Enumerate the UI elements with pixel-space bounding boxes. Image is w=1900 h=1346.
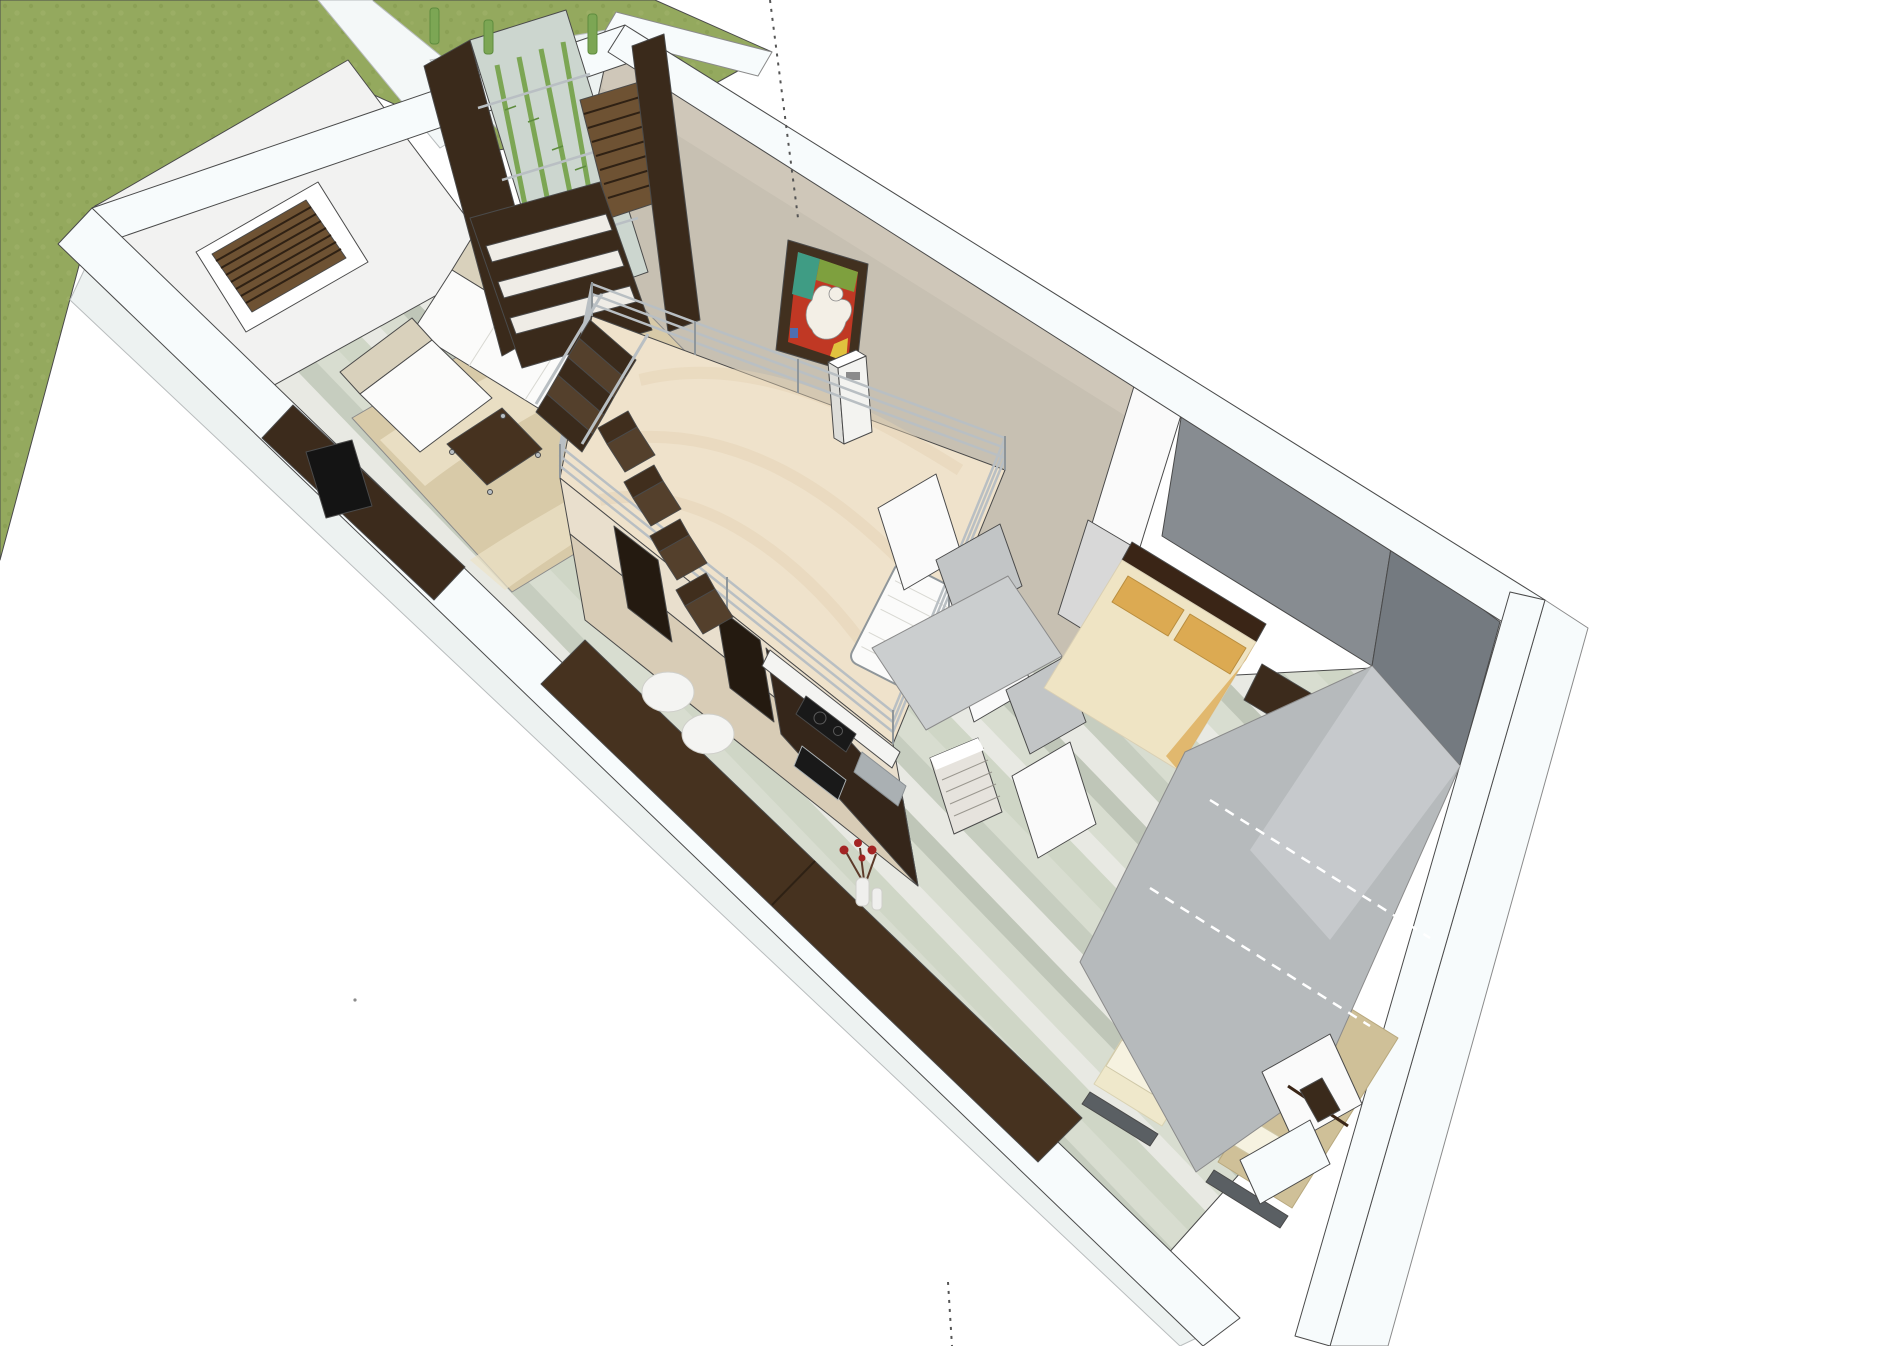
stray-mark [353, 998, 356, 1001]
bar-stool [642, 672, 694, 712]
bar-stool [682, 714, 734, 754]
sketchup-3d-apartment-view [0, 0, 1900, 1346]
